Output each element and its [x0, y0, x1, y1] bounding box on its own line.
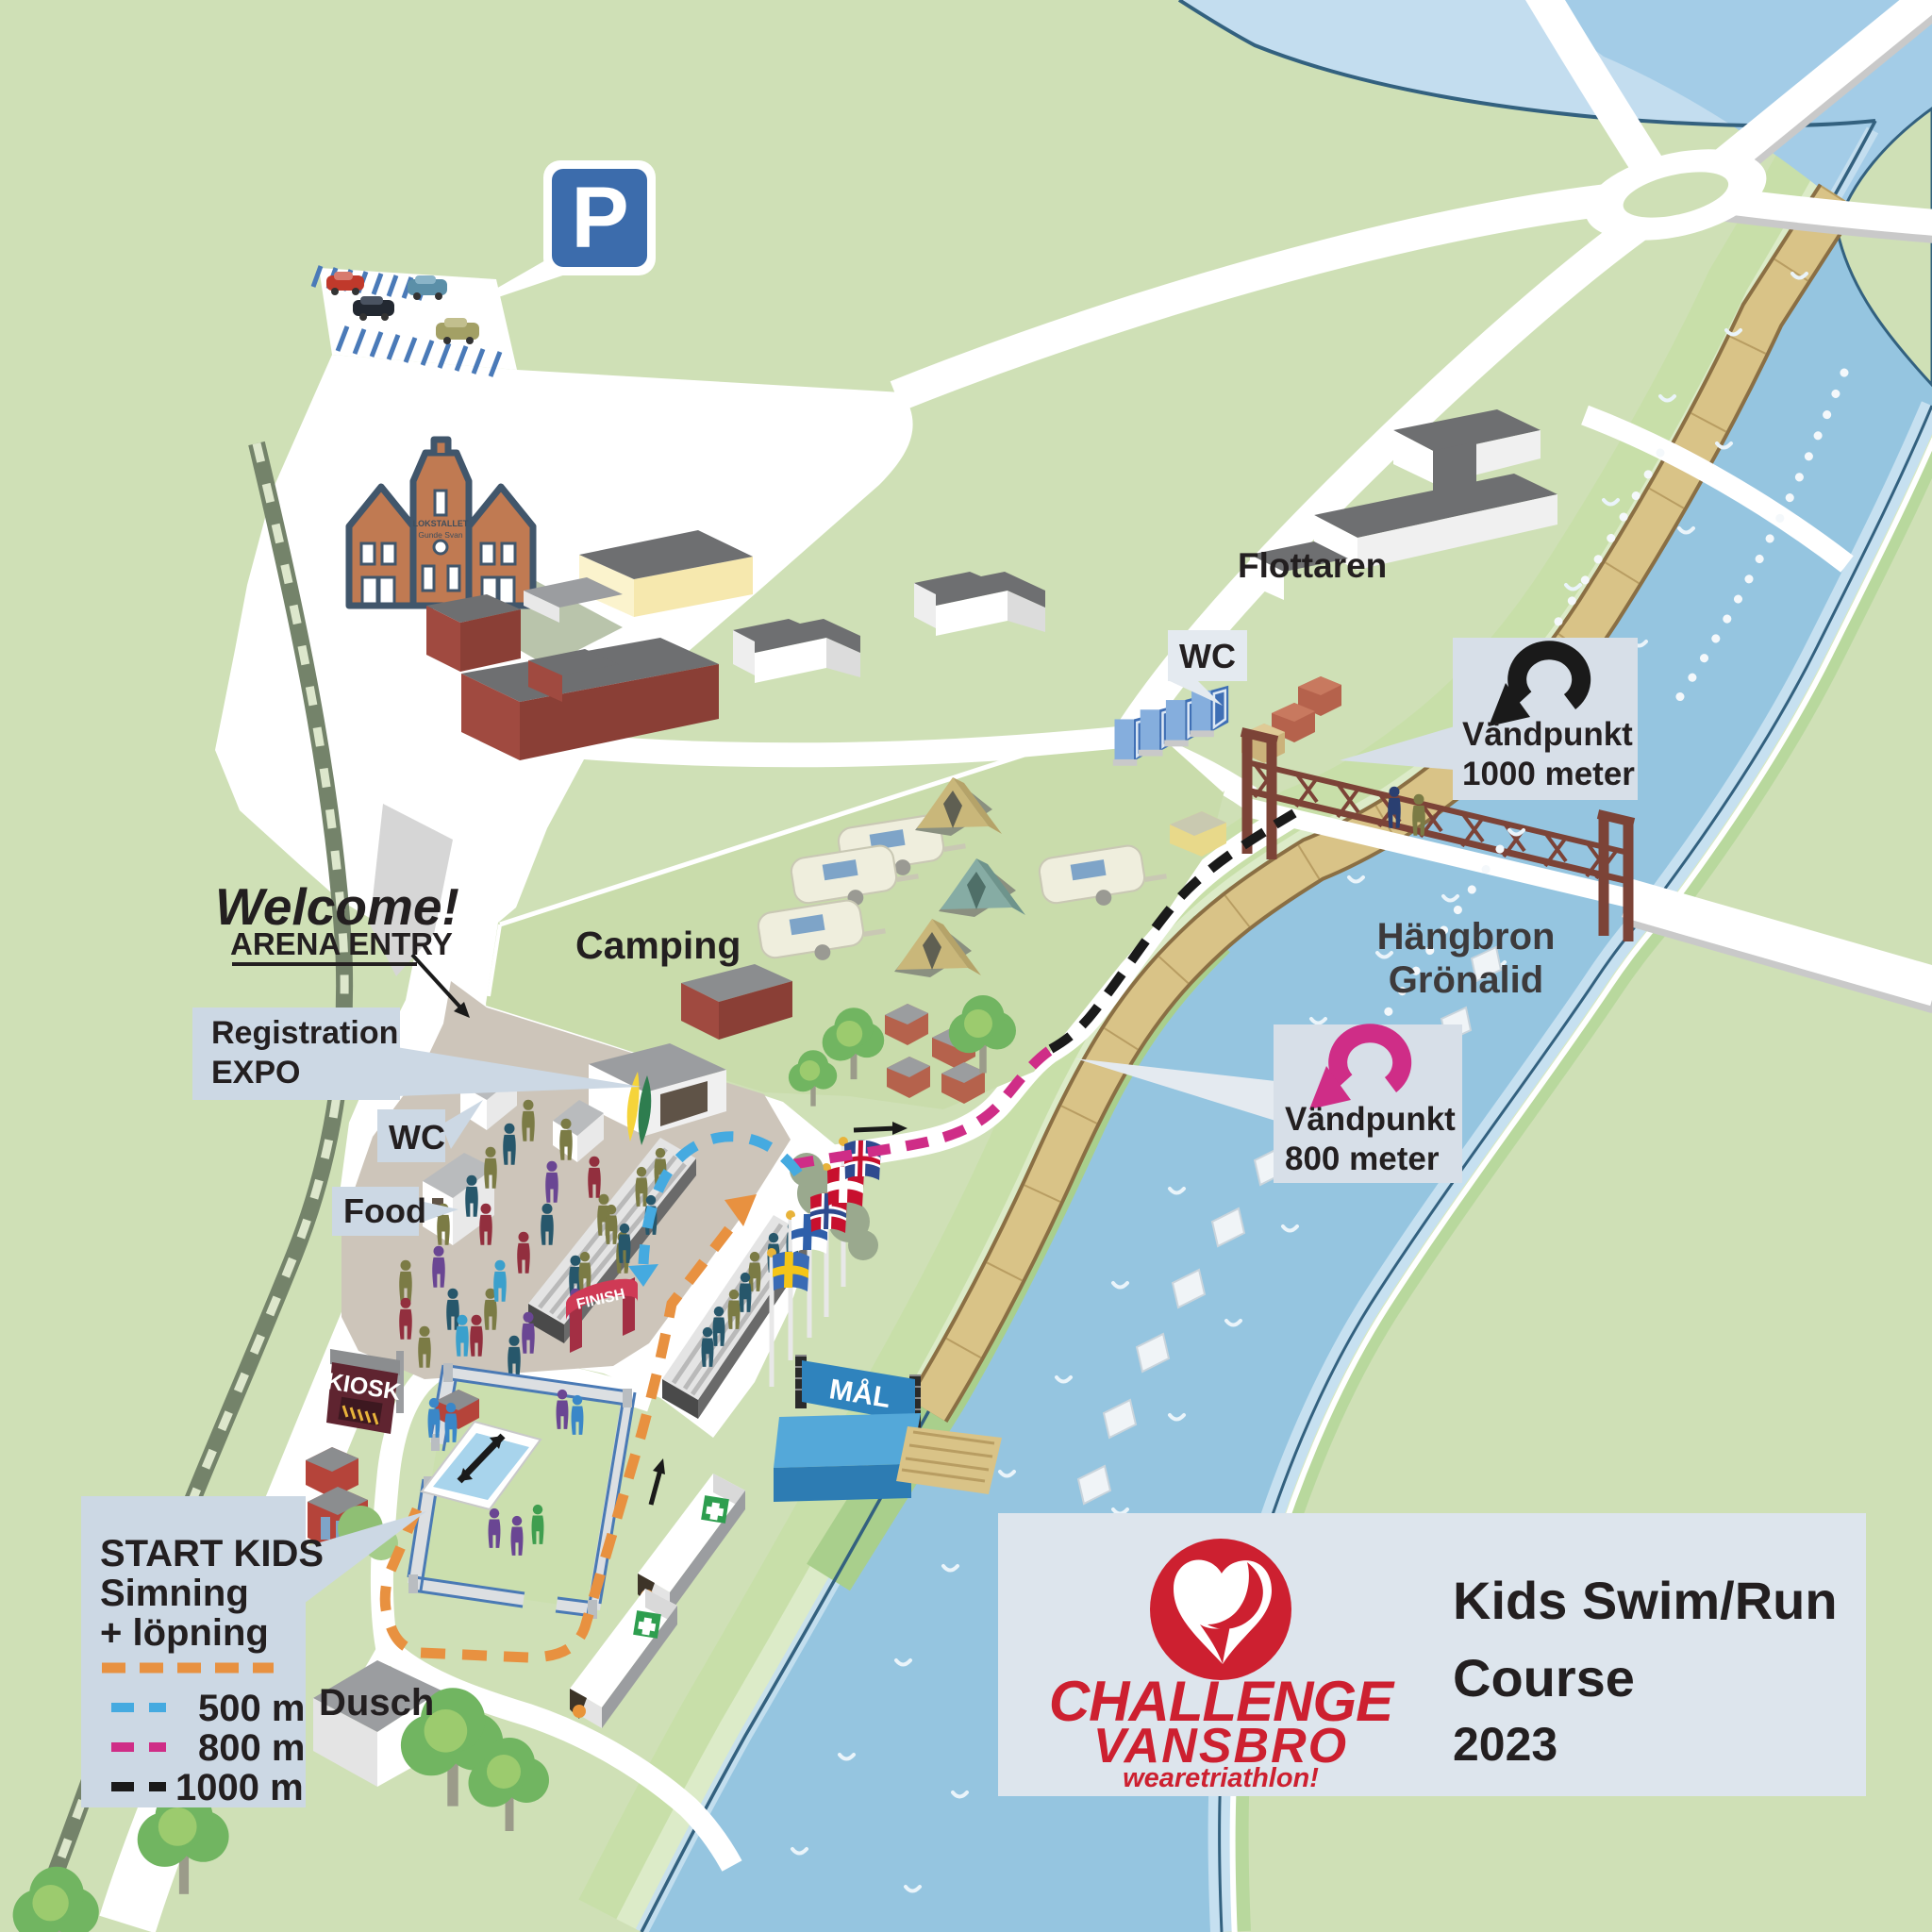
- svg-text:P: P: [571, 170, 628, 266]
- svg-text:WC: WC: [1179, 637, 1236, 675]
- svg-text:LOKSTALLET: LOKSTALLET: [413, 519, 469, 528]
- svg-text:1000 m: 1000 m: [175, 1767, 304, 1808]
- svg-text:1000 meter: 1000 meter: [1462, 756, 1635, 792]
- svg-text:Grönalid: Grönalid: [1389, 959, 1543, 1001]
- svg-text:800 meter: 800 meter: [1285, 1141, 1440, 1177]
- svg-text:Flottaren: Flottaren: [1238, 546, 1387, 585]
- svg-text:Course: Course: [1453, 1648, 1635, 1707]
- svg-text:ARENA ENTRY: ARENA ENTRY: [230, 926, 453, 961]
- svg-text:Hängbron: Hängbron: [1377, 916, 1556, 958]
- svg-text:START KIDS: START KIDS: [100, 1533, 324, 1574]
- svg-text:EXPO: EXPO: [211, 1055, 300, 1091]
- svg-text:800 m: 800 m: [198, 1727, 305, 1769]
- svg-text:Gunde Svan: Gunde Svan: [418, 530, 463, 540]
- svg-text:+ löpning: + löpning: [100, 1612, 269, 1654]
- svg-text:Kids Swim/Run: Kids Swim/Run: [1453, 1571, 1838, 1630]
- svg-text:WC: WC: [389, 1118, 445, 1157]
- svg-text:Vändpunkt: Vändpunkt: [1462, 716, 1633, 753]
- svg-text:Simning: Simning: [100, 1573, 249, 1614]
- svg-text:Registration: Registration: [211, 1015, 398, 1051]
- svg-text:2023: 2023: [1453, 1718, 1557, 1771]
- svg-text:Dusch: Dusch: [319, 1682, 434, 1724]
- svg-text:Camping: Camping: [575, 924, 741, 967]
- svg-text:Vändpunkt: Vändpunkt: [1285, 1101, 1456, 1138]
- svg-text:Food: Food: [343, 1191, 426, 1230]
- svg-text:500 m: 500 m: [198, 1688, 305, 1729]
- svg-text:wearetriathlon!: wearetriathlon!: [1123, 1763, 1319, 1793]
